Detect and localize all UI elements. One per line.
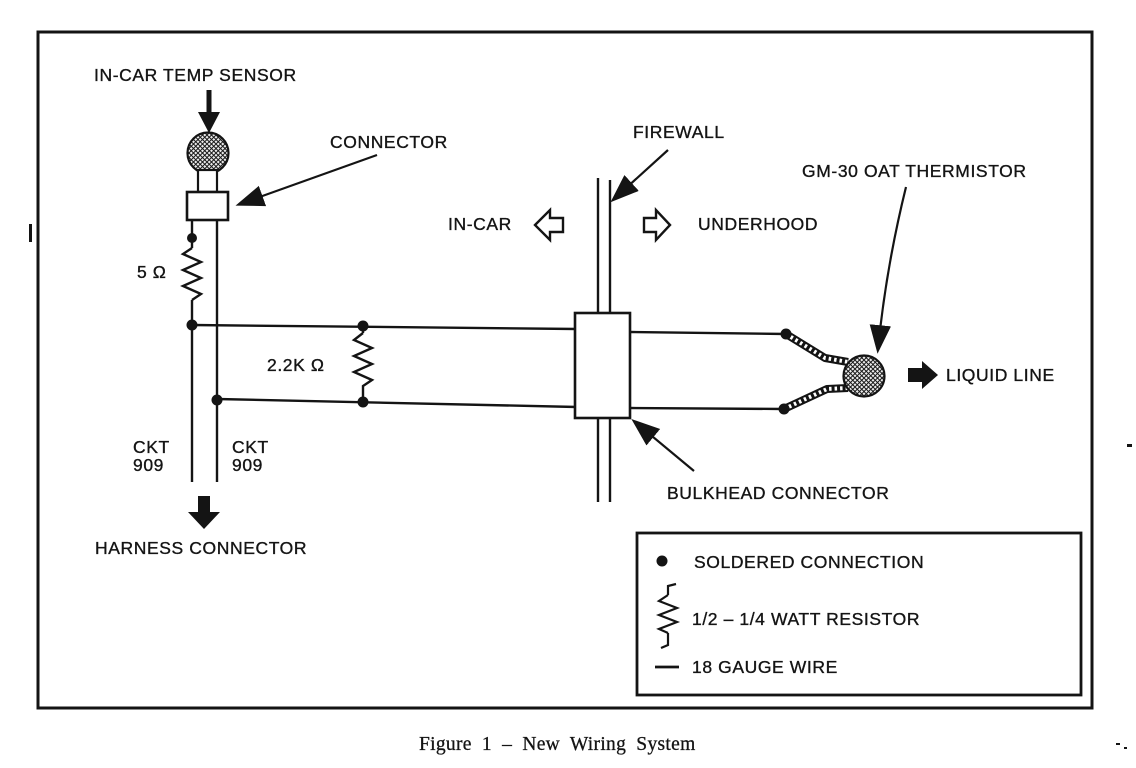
soldered-connection-dots [187, 233, 792, 415]
sensor-pointer-arrow [198, 90, 220, 133]
scan-artifacts [29, 224, 1132, 749]
label-firewall: FIREWALL [633, 123, 725, 141]
scanned-wiring-figure: IN-CAR TEMP SENSOR CONNECTOR FIREWALL IN… [0, 0, 1136, 768]
label-connector: CONNECTOR [330, 133, 448, 151]
figure-caption: Figure 1 – New Wiring System [419, 734, 696, 756]
gm30-thermistor-symbol [844, 356, 885, 397]
label-liquid-line: LIQUID LINE [946, 366, 1055, 384]
label-leader-arrows [240, 150, 906, 471]
label-ckt-909-right: CKT 909 [232, 438, 269, 474]
circuit-wires [192, 220, 786, 482]
in-car-direction-arrow [535, 210, 563, 240]
sensor-connector-box [187, 192, 228, 220]
bulkhead-connector-box [575, 313, 630, 418]
harness-arrow [188, 496, 220, 529]
resistor-2-2k-symbol [354, 333, 372, 390]
legend-label-watt-resistor: 1/2 – 1/4 WATT RESISTOR [692, 610, 920, 628]
thermistor-leads [784, 334, 848, 409]
sensor-stem [198, 170, 217, 192]
legend-soldered-dot [657, 556, 668, 567]
in-car-temp-sensor-symbol [188, 133, 229, 174]
label-harness-connector: HARNESS CONNECTOR [95, 539, 307, 557]
legend-label-soldered-connection: SOLDERED CONNECTION [694, 553, 924, 571]
label-in-car: IN-CAR [448, 215, 512, 233]
liquid-line-arrow [908, 361, 938, 389]
label-in-car-temp-sensor: IN-CAR TEMP SENSOR [94, 66, 297, 84]
underhood-direction-arrow [644, 210, 670, 240]
label-underhood: UNDERHOOD [698, 215, 818, 233]
legend-label-gauge-wire: 18 GAUGE WIRE [692, 658, 838, 676]
diagram-border [38, 32, 1092, 708]
resistor-5ohm-symbol [183, 248, 201, 300]
label-gm30-oat-thermistor: GM-30 OAT THERMISTOR [802, 162, 1027, 180]
legend-resistor-symbol [659, 584, 677, 648]
label-5-ohm: 5 Ω [137, 263, 166, 281]
label-ckt-909-left: CKT 909 [133, 438, 170, 474]
label-2-2k-ohm: 2.2K Ω [267, 356, 325, 374]
label-bulkhead-connector: BULKHEAD CONNECTOR [667, 484, 889, 502]
